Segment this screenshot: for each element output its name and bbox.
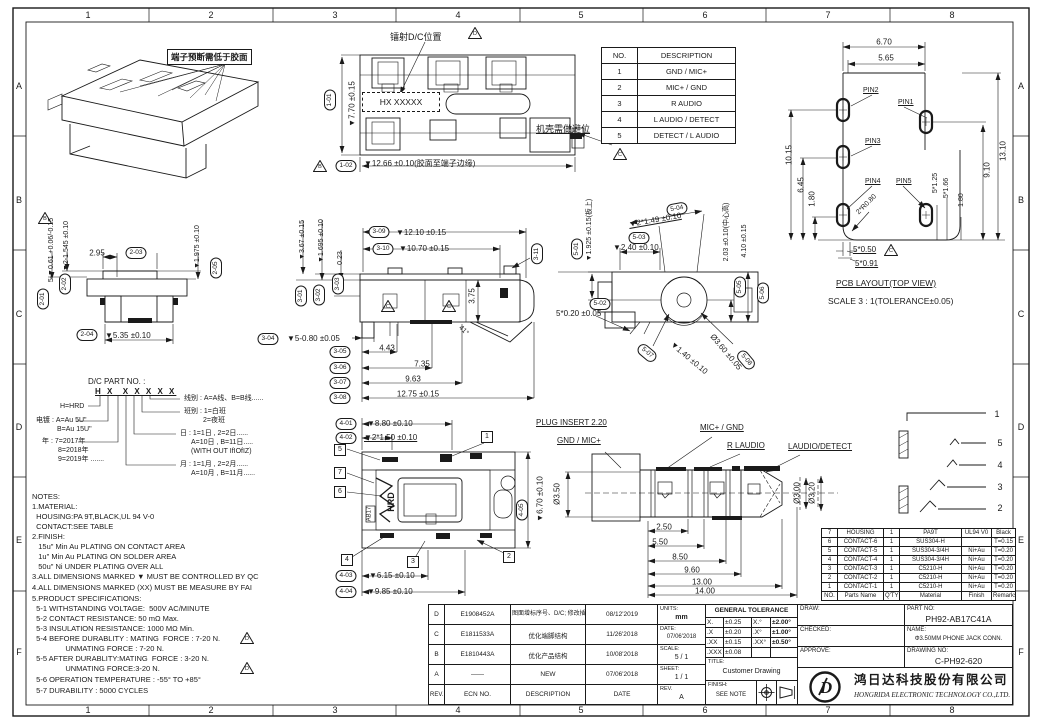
drawing-no-value: C-PH92-620 xyxy=(905,656,1012,666)
sheet-cell: SHEET: 1 / 1 xyxy=(657,664,706,685)
pin-description-table: NO.DESCRIPTION 1GND / MIC+ 2MIC+ / GND 3… xyxy=(601,47,736,144)
drawing-sheet: 1 2 3 4 5 6 7 8 1 2 3 4 5 6 7 8 A B C D … xyxy=(0,0,1043,718)
desc-cell: 3 xyxy=(602,96,638,112)
parts-header: Material xyxy=(900,592,962,601)
name-cell: NAME: Φ3.50MM PHONE JACK CONN. xyxy=(904,625,1013,647)
tol-cell: ±0.50° xyxy=(771,638,799,648)
callout-square-1: 1 xyxy=(481,431,493,443)
callout-square-6: 6 xyxy=(334,486,346,498)
balloon-3-09: 3-09 xyxy=(368,226,389,238)
zone-row-b2: B xyxy=(1018,195,1024,205)
zone-row-e: E xyxy=(16,535,22,545)
parts-cell: C5210-H xyxy=(900,583,962,592)
zone-col-7b: 7 xyxy=(825,705,830,715)
tol-cell: .XXX xyxy=(706,648,724,658)
dc-legend-shift1: 班别 : 1=白班 xyxy=(184,408,226,416)
schematic-pin-2: 2 xyxy=(997,503,1002,513)
dim-3-07-value: 9.63 xyxy=(405,374,421,383)
balloon-4-02: 4-02 xyxy=(335,432,356,444)
finish-cell: FINISH: SEE NOTE xyxy=(705,680,757,705)
balloon-2-03: 2-03 xyxy=(125,247,146,259)
draw-label: DRAW: xyxy=(800,606,820,612)
dc-legend-month1: 月 : 1=1月 , 2=2月...... xyxy=(180,461,248,469)
parts-cell xyxy=(962,538,992,547)
dim-4-02-value: ▼2*1.50 ±0.10 xyxy=(364,433,417,442)
dc-legend-year2: 8=2018年 xyxy=(58,447,89,455)
note-line: NOTES: xyxy=(32,492,60,501)
parts-cell: Black xyxy=(992,529,1016,538)
tol-cell: .X° xyxy=(752,628,771,638)
pcb-pin1-label: PIN1 xyxy=(898,99,914,107)
balloon-3-04: 3-04 xyxy=(257,333,278,345)
pcb-dim-1015: 10.15 xyxy=(784,145,793,165)
tol-cell: ±2.00° xyxy=(771,618,799,628)
balloon-4-01: 4-01 xyxy=(335,418,356,430)
pcb-dim-5166: 5*1.66 xyxy=(943,178,951,198)
zone-row-d2: D xyxy=(1018,422,1025,432)
rev-cell: 07/06'2018 xyxy=(586,665,659,685)
balloon-2-04: 2-04 xyxy=(76,329,97,341)
balloon-3-08: 3-08 xyxy=(329,392,350,404)
zone-row-e2: E xyxy=(1018,535,1024,545)
parts-cell: T=0.20 xyxy=(992,583,1016,592)
parts-cell: T=0.15 xyxy=(992,538,1016,547)
plug-dim-250: 2.50 xyxy=(656,522,672,531)
desc-cell: 2 xyxy=(602,80,638,96)
balloon-5-05: 5-05 xyxy=(734,276,746,297)
zone-col-1: 1 xyxy=(85,10,90,20)
zone-col-7: 7 xyxy=(825,10,830,20)
pcb-dim-5091: 5*0.91 xyxy=(855,259,878,268)
dc-legend-month2: A=10月 , B=11月...... xyxy=(191,470,255,478)
scale-value: 5 / 1 xyxy=(658,654,705,661)
zone-col-3: 3 xyxy=(332,10,337,20)
desc-cell: DETECT / L AUDIO xyxy=(638,128,736,144)
dc-legend-shift2: 2=夜班 xyxy=(203,417,225,425)
balloon-4-05: 4-05 xyxy=(516,499,528,520)
dc-code-box: HX XXXXX xyxy=(362,92,440,112)
approve-cell: APPROVE: xyxy=(797,646,905,668)
balloon-3-10: 3-10 xyxy=(372,243,393,255)
desc-cell: R AUDIO xyxy=(638,96,736,112)
rev-label: REV. xyxy=(660,686,672,692)
parts-cell: UL94 V0 xyxy=(962,529,992,538)
parts-cell: SUS304-H xyxy=(900,538,962,547)
balloon-3-11: 3-11 xyxy=(531,244,543,265)
pcb-pin4-label: PIN4 xyxy=(865,178,881,186)
dim-4-04-value: ▼9.85 ±0.10 xyxy=(367,587,413,596)
zone-row-f: F xyxy=(16,647,22,657)
title-cell: TITLE: Customer Drawing xyxy=(705,657,798,681)
laser-dc-label: 镭射D/C位置 xyxy=(390,32,442,42)
dc-legend-day2: A=10日 , B=11日..... xyxy=(191,439,253,447)
note-line: 5-7 DURABILITY : 5000 CYCLES xyxy=(32,686,148,695)
plug-dim-550: 5.50 xyxy=(652,537,668,546)
note-line: UNMATING FORCE:3-20 N. xyxy=(32,664,160,673)
rev-cell: B xyxy=(429,645,445,665)
balloon-1-01: 1-01 xyxy=(324,89,336,110)
pcb-dim-180r: 1.80 xyxy=(958,193,966,207)
schematic-pin-4: 4 xyxy=(997,460,1002,470)
note-line: 2.FINISH: xyxy=(32,532,65,541)
dim-3-01-value: ▼3.67 ±0.15 xyxy=(299,220,307,260)
dim-3-03-value: 0.23 xyxy=(337,251,345,265)
zone-col-5: 5 xyxy=(578,10,583,20)
parts-cell: CONTACT-1 xyxy=(838,583,884,592)
callout-square-3: 3 xyxy=(407,556,419,568)
sheet-label: SHEET: xyxy=(660,666,679,672)
plug-dim-1400: 14.00 xyxy=(695,586,715,595)
note-line: 15u" Min Au PLATING ON CONTACT AREA xyxy=(32,542,185,551)
parts-cell: PA9T xyxy=(900,529,962,538)
plug-dim-960: 9.60 xyxy=(684,565,700,574)
projection-symbol-cell-1 xyxy=(756,680,777,705)
name-value: Φ3.50MM PHONE JACK CONN. xyxy=(905,636,1012,642)
note-line: 4.ALL DIMENSIONS MARKED (XX) MUST BE MEA… xyxy=(32,583,252,592)
note-line: 5-6 OPERATION TEMPERATURE : -55° TO +85° xyxy=(32,675,201,684)
cone-projection-icon xyxy=(777,681,797,704)
desc-cell: MIC+ / GND xyxy=(638,80,736,96)
plug-dim-1300: 13.00 xyxy=(692,577,712,586)
balloon-5-01: 5-01 xyxy=(571,238,583,259)
parts-cell: Ni+Au xyxy=(962,583,992,592)
plug-gnd-label: GND / MIC+ xyxy=(557,436,601,445)
part-no-label: PART NO: xyxy=(907,606,935,612)
company-logo: D xyxy=(808,670,842,704)
plug-raudio-label: R LAUDIO xyxy=(727,441,765,450)
dim-4-05-value: ▼6.70 ±0.10 xyxy=(535,476,544,522)
date-label: DATE: xyxy=(660,626,676,632)
desc-header-no: NO. xyxy=(602,48,638,64)
balloon-4-04: 4-04 xyxy=(335,586,356,598)
rev-header: REV. xyxy=(429,685,445,705)
tol-cell xyxy=(771,648,799,658)
checked-cell: CHECKED: xyxy=(797,625,905,647)
dc-legend-day3: (WITH OUT IfIOfIZ) xyxy=(191,448,252,456)
triangle-c-marker-3b: C xyxy=(442,300,456,312)
dim-3-02-value: ▼1.695 ±0.10 xyxy=(318,219,326,263)
rev-cell: 优化产品结构 xyxy=(511,645,586,665)
scale-label: SCALE: xyxy=(660,646,680,652)
tol-cell: .X xyxy=(706,628,724,638)
units-value: mm xyxy=(658,614,705,621)
parts-cell: Ni+Au xyxy=(962,556,992,565)
rev-value: A xyxy=(658,694,705,701)
dim-5-01-value: ▼1.925 ±0.15(板上) xyxy=(586,199,594,262)
parts-cell: 3 xyxy=(822,565,838,574)
tol-cell: .XX xyxy=(706,638,724,648)
pcb-dim-910: 9.10 xyxy=(982,162,991,178)
balloon-5-06: 5-06 xyxy=(757,282,769,303)
parts-cell: 1 xyxy=(884,547,900,556)
approve-label: APPROVE: xyxy=(800,648,831,654)
dim-5-03-value: ▼2.40 ±0.10 xyxy=(613,243,659,252)
plug-laudio-label: LAUDIO/DETECT xyxy=(788,442,852,451)
dc-legend-h: H=HRD xyxy=(60,403,84,411)
plug-dim-850: 8.50 xyxy=(672,552,688,561)
plug-dia-350: Ø3.50 xyxy=(552,483,561,505)
plug-mic-label: MIC+ / GND xyxy=(700,423,744,432)
parts-cell: SUS304-3/4H xyxy=(900,556,962,565)
target-symbol-icon xyxy=(757,681,776,704)
dc-legend-plating1: 电镀 : A=Au 5U" xyxy=(36,417,87,425)
case-clearance-note: 机壳需做避位 xyxy=(536,124,590,134)
desc-cell: L AUDIO / DETECT xyxy=(638,112,736,128)
pcb-pin5-label: PIN5 xyxy=(896,178,912,186)
units-cell: UNITS: mm xyxy=(657,604,706,625)
title-label: TITLE: xyxy=(708,659,725,665)
parts-cell: CONTACT-2 xyxy=(838,574,884,583)
rev-cell: D xyxy=(429,605,445,625)
parts-cell: CONTACT-5 xyxy=(838,547,884,556)
parts-cell: SUS304-3/4H xyxy=(900,547,962,556)
pcb-dim-5125: 5*1.25 xyxy=(932,173,940,193)
parts-cell: 4 xyxy=(822,556,838,565)
balloon-2-01: 2-01 xyxy=(37,288,49,309)
company-name-cn: 鸿日达科技股份有限公司 xyxy=(854,673,1008,687)
sheet-value: 1 / 1 xyxy=(658,674,705,681)
pcb-title: PCB LAYOUT(TOP VIEW) xyxy=(836,279,936,289)
note-line: 1u" Min Au PLATING ON SOLDER AREA xyxy=(32,552,176,561)
pcb-pin2-label: PIN2 xyxy=(863,87,879,95)
pcb-dim-180l: 1.80 xyxy=(807,191,816,207)
zone-row-c: C xyxy=(16,309,23,319)
rev-cell-info: REV. A xyxy=(657,684,706,705)
zone-row-b: B xyxy=(16,195,22,205)
parts-header: NO. xyxy=(822,592,838,601)
dim-4-03-value: ▼6.15 ±0.10 xyxy=(369,571,415,580)
finish-label: FINISH: xyxy=(708,682,728,688)
schematic-pin-5: 5 xyxy=(997,438,1002,448)
balloon-3-07: 3-07 xyxy=(329,377,350,389)
parts-cell: 1 xyxy=(884,556,900,565)
pcb-dim-670: 6.70 xyxy=(876,37,892,46)
parts-cell: 1 xyxy=(884,583,900,592)
parts-cell: Ni+Au xyxy=(962,565,992,574)
zone-col-5b: 5 xyxy=(578,705,583,715)
triangle-d-marker-note2: D xyxy=(240,662,254,674)
draw-cell: DRAW: xyxy=(797,604,905,626)
desc-header-desc: DESCRIPTION xyxy=(638,48,736,64)
revision-table: DE1908452A图面增标序号、D/C; 修改插拔力规格08/12'2019 … xyxy=(428,604,659,705)
parts-cell: 1 xyxy=(884,565,900,574)
date-value: 07/06'2018 xyxy=(658,634,705,640)
tol-cell xyxy=(752,648,771,658)
zone-col-2: 2 xyxy=(208,10,213,20)
rev-cell: E1811533A xyxy=(445,625,511,645)
rev-cell: 优化端脚结构 xyxy=(511,625,586,645)
parts-header: Remarks xyxy=(992,592,1016,601)
parts-cell: 7 xyxy=(822,529,838,538)
dc-legend-day1: 日 : 1=1日 , 2=2日...... xyxy=(180,430,248,438)
pcb-dim-1310: 13.10 xyxy=(998,141,1007,161)
callout-square-5: 5 xyxy=(334,444,346,456)
dim-5-06-value: 4.10 ±0.15 xyxy=(741,224,749,257)
parts-cell: 1 xyxy=(884,574,900,583)
parts-cell: T=0.20 xyxy=(992,565,1016,574)
note-line: 5-2 CONTACT RESISTANCE: 50 mΩ Max. xyxy=(32,614,179,623)
parts-cell: 1 xyxy=(884,529,900,538)
rev-cell: —— xyxy=(445,665,511,685)
schematic-pin-1: 1 xyxy=(994,409,999,419)
scale-cell: SCALE: 5 / 1 xyxy=(657,644,706,665)
projection-symbol-cell-2 xyxy=(776,680,798,705)
pin-schematic-lines xyxy=(899,413,986,513)
balloon-2-05: 2-05 xyxy=(210,257,222,278)
terminal-note-box: 端子预断需低于胶面 xyxy=(167,49,252,65)
balloon-3-05: 3-05 xyxy=(329,346,350,358)
dim-2-05-value: ▼1.975 ±0.10 xyxy=(194,225,202,269)
dim-3-08-value: 12.75 ±0.15 xyxy=(397,389,439,398)
part-no-cell: PART NO: PH92-AB17C41A xyxy=(904,604,1013,626)
pcb-pin3-label: PIN3 xyxy=(865,138,881,146)
dim-5-05-value: 2.03 ±0.10(中心高) xyxy=(723,203,731,262)
note-line: 5-4 BEFORE DURABLITY : MATING FORCE : 7-… xyxy=(32,634,220,643)
zone-row-a: A xyxy=(16,81,22,91)
dc-legend-wire: 线别 : A=A线、B=B线...... xyxy=(184,395,263,403)
dc-legend-year1: 年 : 7=2017年 xyxy=(42,438,85,446)
parts-cell: T=0.20 xyxy=(992,547,1016,556)
callout-square-2: 2 xyxy=(503,551,515,563)
tolerance-header: GENERAL TOLERANCE xyxy=(705,604,798,618)
dim-2-02-value: ▼2-1.545 ±0.10 xyxy=(63,221,71,271)
zone-col-6: 6 xyxy=(702,10,707,20)
zone-col-8: 8 xyxy=(949,10,954,20)
callout-square-4: 4 xyxy=(341,554,353,566)
pcb-layout-lines xyxy=(788,42,1005,261)
dc-legend-plating2: B=Au 15U" xyxy=(57,426,92,434)
note-line: HOUSING:PA 9T,BLACK,UL 94 V-0 xyxy=(32,512,154,521)
desc-cell: 4 xyxy=(602,112,638,128)
triangle-b-marker-1: B xyxy=(313,160,327,172)
pcb-dim-645: 6.45 xyxy=(796,177,805,193)
tol-cell: ±0.08 xyxy=(724,648,752,658)
zone-col-3b: 3 xyxy=(332,705,337,715)
plug-title: PLUG INSERT 2.20 xyxy=(536,418,607,427)
parts-cell: C5210-H xyxy=(900,574,962,583)
zone-col-2b: 2 xyxy=(208,705,213,715)
note-line: 5.PRODUCT SPECIFICATIONS: xyxy=(32,594,141,603)
balloon-3-01: 3-01 xyxy=(295,285,307,306)
desc-cell: 1 xyxy=(602,64,638,80)
pcb-scale: SCALE 3 : 1(TOLERANCE±0.05) xyxy=(828,297,953,307)
triangle-d-marker-note1: D xyxy=(240,632,254,644)
parts-cell: 5 xyxy=(822,547,838,556)
tol-cell: X. xyxy=(706,618,724,628)
checked-label: CHECKED: xyxy=(800,627,831,633)
parts-cell: 1 xyxy=(884,538,900,547)
rev-cell: A xyxy=(429,665,445,685)
dim-1-02: ▼12.66 ±0.10(胶面至端子边缘) xyxy=(364,159,475,168)
dim-2-01-value: 5-▼0.61 +0.06/-0.15 xyxy=(48,218,56,282)
parts-cell: CONTACT-4 xyxy=(838,556,884,565)
tol-cell: X.° xyxy=(752,618,771,628)
tol-cell: ±0.20 xyxy=(724,628,752,638)
triangle-d-marker: D xyxy=(468,27,482,39)
finish-value: SEE NOTE xyxy=(706,692,756,698)
parts-cell: 1 xyxy=(822,583,838,592)
rev-header: DESCRIPTION xyxy=(511,685,586,705)
zone-row-c2: C xyxy=(1018,309,1025,319)
dc-legend-code: H X X X X X X xyxy=(95,387,176,396)
desc-cell: GND / MIC+ xyxy=(638,64,736,80)
bottom-view-lines xyxy=(347,418,531,596)
company-name-en: HONGRIDA ELECTRONIC TECHNOLOGY CO.,LTD. xyxy=(854,691,1010,699)
dim-3-11-value: 3.75 xyxy=(467,288,476,304)
dim-5-02-value: 5*0.20 ±0.05 xyxy=(556,309,601,318)
zone-col-4: 4 xyxy=(455,10,460,20)
rev-cell: 08/12'2019 xyxy=(586,605,659,625)
part-no-value: PH92-AB17C41A xyxy=(905,614,1012,624)
note-line: 5-3 INSULATION RESISTANCE: 1000 MΩ Min. xyxy=(32,624,194,633)
parts-cell: Ni+Au xyxy=(962,547,992,556)
balloon-3-03: 3-03 xyxy=(332,273,344,294)
name-label: NAME: xyxy=(907,627,926,633)
parts-cell: Ni+Au xyxy=(962,574,992,583)
zone-row-d: D xyxy=(16,422,23,432)
rev-cell: E1810443A xyxy=(445,645,511,665)
parts-cell: 2 xyxy=(822,574,838,583)
dim-2-04-value: ▼5.35 ±0.10 xyxy=(105,331,151,340)
part-mark-ab17: AB17 xyxy=(367,507,374,522)
note-line: 50u" Ni UNDER PLATING OVER ALL xyxy=(32,562,163,571)
plug-dia-320: Ø3.20 xyxy=(807,482,816,504)
desc-cell: 5 xyxy=(602,128,638,144)
note-line: UNMATING FORCE : 7-20 N. xyxy=(32,644,164,653)
triangle-c-marker-pcb: C xyxy=(884,244,898,256)
parts-cell: T=0.20 xyxy=(992,574,1016,583)
triangle-c-marker-3a: C xyxy=(381,300,395,312)
balloon-3-02: 3-02 xyxy=(313,284,325,305)
balloon-1-02: 1-02 xyxy=(335,160,356,172)
parts-header: Q'TY xyxy=(884,592,900,601)
dim-3-09-value: ▼12.10 ±0.15 xyxy=(396,228,446,237)
rev-cell: 10/08'2018 xyxy=(586,645,659,665)
rev-cell: 11/26'2018 xyxy=(586,625,659,645)
dc-legend-year3: 9=2019年 ....... xyxy=(58,456,104,464)
dim-4-01-value: ▼8.80 ±0.10 xyxy=(367,419,413,428)
triangle-c-marker-1: C xyxy=(613,148,627,160)
parts-cell: T=0.20 xyxy=(992,556,1016,565)
drawing-no-cell: DRAWING NO: C-PH92-620 xyxy=(904,646,1013,668)
tol-cell: ±0.25 xyxy=(724,618,752,628)
pcb-dim-565: 5.65 xyxy=(878,53,894,62)
part-mark-hrd: HRD xyxy=(386,492,396,512)
balloon-4-03: 4-03 xyxy=(335,570,356,582)
balloon-2-02: 2-02 xyxy=(59,273,71,294)
dim-1-01: ▼7.70 ±0.15 xyxy=(347,81,356,127)
parts-cell: CONTACT-6 xyxy=(838,538,884,547)
rev-cell: NEW xyxy=(511,665,586,685)
note-line: 3.ALL DIMENSIONS MARKED ▼ MUST BE CONTRO… xyxy=(32,572,259,581)
zone-col-6b: 6 xyxy=(702,705,707,715)
tol-cell: .XX° xyxy=(752,638,771,648)
dim-2-03-value: 2.95 xyxy=(89,248,105,257)
dim-3-04-value: ▼5-0.80 ±0.05 xyxy=(287,334,340,343)
rev-cell: 图面增标序号、D/C; 修改插拔力规格 xyxy=(511,605,586,625)
rev-cell: E1908452A xyxy=(445,605,511,625)
parts-cell: 6 xyxy=(822,538,838,547)
company-cell: D 鸿日达科技股份有限公司 HONGRIDA ELECTRONIC TECHNO… xyxy=(797,667,1013,705)
rev-header: ECN NO. xyxy=(445,685,511,705)
zone-row-f2: F xyxy=(1018,647,1024,657)
callout-square-7: 7 xyxy=(334,467,346,479)
note-line: 5-5 AFTER DURABLITY:MATING FORCE : 3-20 … xyxy=(32,654,209,663)
title-value: Customer Drawing xyxy=(706,668,797,675)
dim-3-10-value: ▼10.70 ±0.15 xyxy=(399,244,449,253)
parts-header: Parts Name xyxy=(838,592,884,601)
parts-cell: HOUSING xyxy=(838,529,884,538)
